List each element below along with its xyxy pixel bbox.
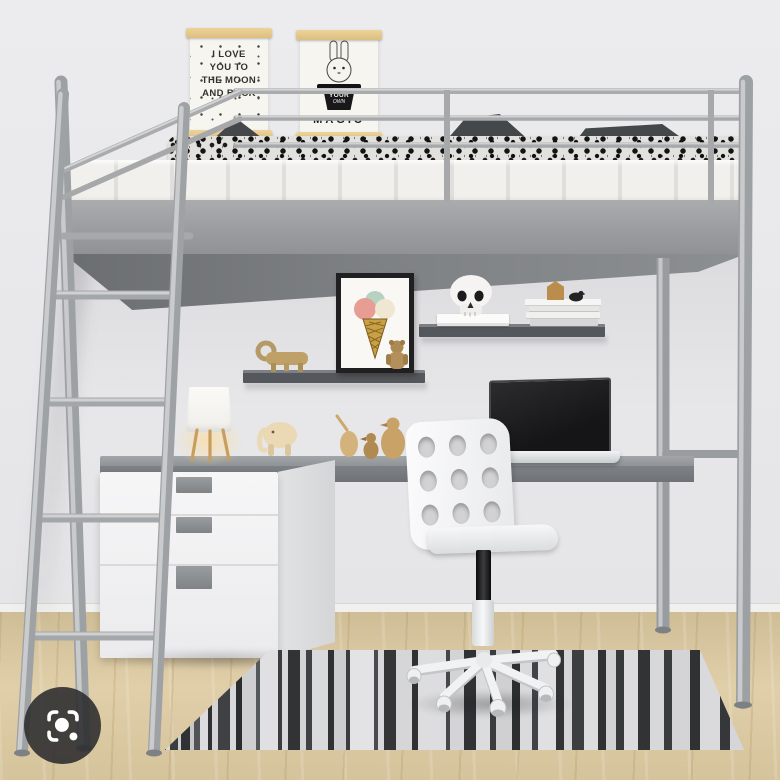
google-lens-button[interactable]: [24, 687, 101, 764]
google-lens-icon: [44, 707, 82, 745]
bed-ladder: [0, 0, 780, 780]
room-photo: I LOVE YOU TO THE MOON AND BACK: [0, 0, 780, 780]
